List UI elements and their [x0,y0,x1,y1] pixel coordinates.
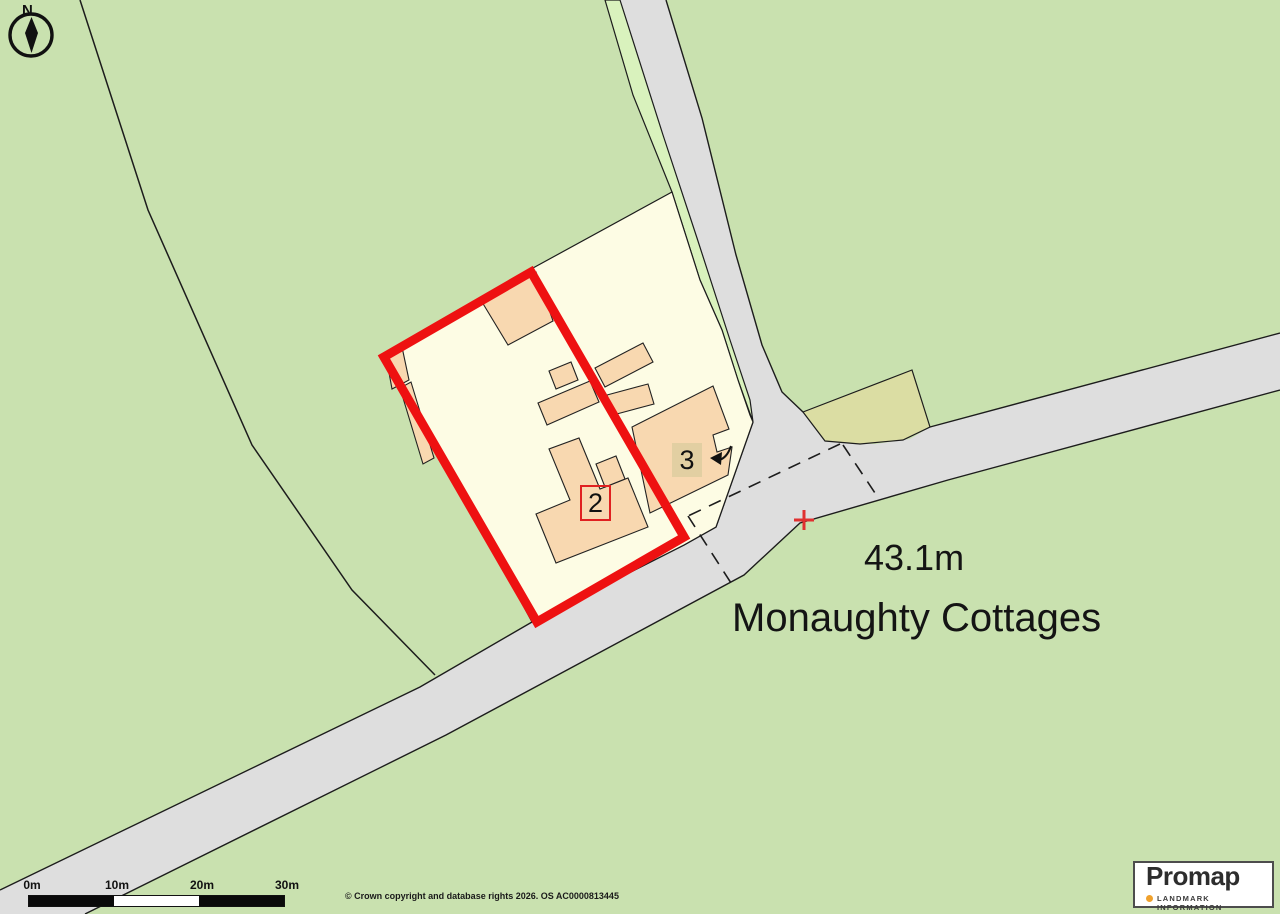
north-arrow-icon [10,14,52,56]
north-label: N [22,2,33,19]
khaki-parcel [803,370,930,444]
plot-3-label: 3 [672,443,702,477]
plot-2-label: 2 [580,485,611,521]
scale-bar [28,895,285,907]
promap-logo-text: Promap [1146,861,1240,892]
scale-tick-label: 20m [190,878,214,892]
promap-tagline-text: LANDMARK INFORMATION [1157,894,1272,912]
scale-tick-label: 0m [23,878,40,892]
scale-tick-label: 30m [275,878,299,892]
spot-height-label: 43.1m [864,537,964,579]
scale-tick-label: 10m [105,878,129,892]
promap-logo: Promap LANDMARK INFORMATION [1133,861,1274,908]
scale-bar-segment [199,896,284,906]
scale-bar-segment [29,896,114,906]
map-shapes [0,0,1280,914]
map-canvas: N 2 3 43.1m Monaughty Cottages 0m 10m 20… [0,0,1280,914]
copyright-text: © Crown copyright and database rights 20… [332,891,632,901]
place-name-label: Monaughty Cottages [732,596,1101,641]
logo-dot-icon [1146,895,1153,902]
field-boundary-line [80,0,435,675]
scale-bar-segment [114,896,199,906]
